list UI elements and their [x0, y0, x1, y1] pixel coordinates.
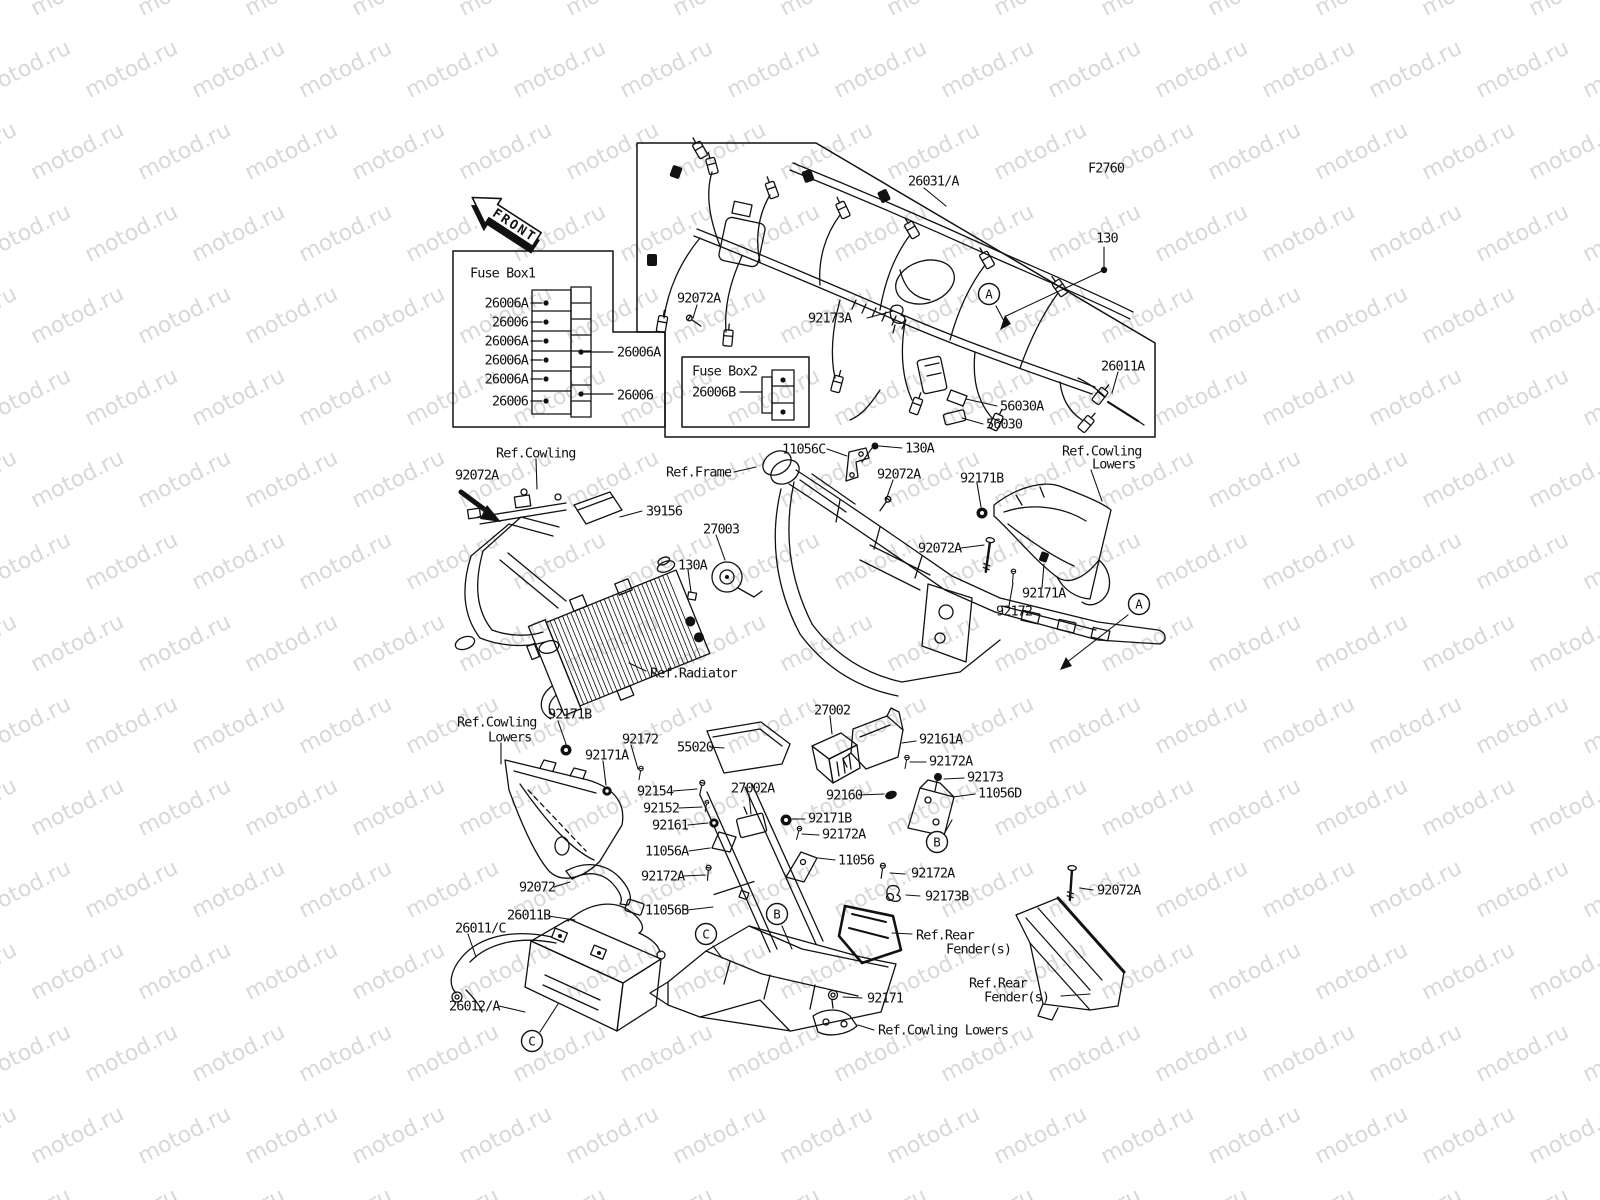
parts-diagram-page: { "watermark": {"text": "motod.ru", "col…: [0, 0, 1600, 1200]
undertray: [650, 926, 896, 1031]
callout-92172a-6: 92172A: [822, 827, 866, 843]
marker-layer: AABBCC: [522, 284, 1150, 1052]
callout-56030: 56030: [986, 417, 1023, 433]
callout-92171b-1: 92171B: [960, 471, 1004, 487]
callout-92072: 92072: [519, 880, 555, 896]
callout-92171a-2: 92171A: [585, 748, 629, 764]
battery-cable-26011b: [568, 904, 642, 933]
battery-strap: [566, 865, 630, 905]
callout-26031a: 26031/A: [908, 174, 959, 190]
callout-11056a: 11056A: [645, 844, 689, 860]
callout-39156: 39156: [646, 504, 683, 520]
callout-92072a-9: 92072A: [1097, 883, 1141, 899]
marker-b-3: B: [767, 904, 788, 925]
callout-92173b: 92173B: [925, 889, 969, 905]
fuse-box1-internals: [531, 287, 613, 417]
callout-92072a-1: 92072A: [677, 291, 721, 307]
callout-92171b-2: 92171B: [808, 811, 852, 827]
callout-fuse1-left-3: 26006A: [485, 334, 529, 350]
callout-26011b: 26011B: [507, 908, 551, 924]
callout-92171: 92171: [867, 991, 904, 1007]
callout-ref-cowl-lowers-b: Ref.Cowling Lowers: [878, 1023, 1008, 1039]
callout-92171a-1: 92171A: [1022, 586, 1066, 602]
callout-fuse1-left-1: 26006A: [485, 296, 529, 312]
marker-c-4: C: [696, 924, 717, 945]
marker-a-1: A: [1129, 594, 1150, 615]
callout-130a-2: 130A: [678, 558, 708, 574]
callout-27002: 27002: [814, 703, 850, 719]
callout-11056c: 11056C: [782, 442, 826, 458]
callout-92161: 92161: [652, 818, 689, 834]
callout-27002a: 27002A: [731, 781, 775, 797]
callout-27003: 27003: [703, 522, 740, 538]
marker-b-2: B: [927, 832, 948, 853]
marker-letter: B: [773, 907, 781, 922]
callout-ref-cowl-lowers-l2: Lowers: [488, 730, 531, 746]
callout-ref-radiator: Ref.Radiator: [650, 666, 738, 682]
marker-letter: A: [1135, 597, 1143, 612]
horn: [712, 562, 762, 597]
callout-fuse1-right-1: 26006A: [617, 345, 661, 361]
callout-92152: 92152: [643, 801, 679, 817]
callout-92072a-4: 92072A: [918, 541, 962, 557]
callout-fusebox2-title: Fuse Box2: [692, 364, 757, 380]
callout-fuse1-left-6: 26006: [492, 394, 529, 410]
marker-letter: C: [702, 927, 710, 942]
callout-92171b-3: 92171B: [548, 707, 592, 723]
callout-26011c: 26011/C: [455, 921, 506, 937]
callout-ref-cowl-lowers-l1: Ref.Cowling: [457, 715, 537, 731]
callout-11056d: 11056D: [978, 786, 1022, 802]
heat-pad: [574, 492, 622, 524]
callout-55020: 55020: [677, 740, 714, 756]
callout-92072a-2: 92072A: [455, 468, 499, 484]
callout-26011a: 26011A: [1101, 359, 1145, 375]
rear-fender-center: [839, 906, 901, 963]
callout-92172a-7: 92172A: [641, 869, 685, 885]
callout-fusebox1-title: Fuse Box1: [470, 266, 536, 282]
callout-ref-rear-fender-c2: Fender(s): [946, 942, 1011, 958]
parts-diagram: FRONT: [0, 0, 1600, 1200]
callout-fuse1-left-5: 26006A: [485, 372, 529, 388]
marker-letter: B: [933, 835, 941, 850]
marker-c-5: C: [522, 1031, 543, 1052]
callout-fuse1-left-2: 26006: [492, 315, 529, 331]
callout-92072a-3: 92072A: [877, 467, 921, 483]
front-arrow: FRONT: [460, 185, 547, 260]
marker-letter: C: [528, 1034, 536, 1049]
fasteners: [561, 495, 1077, 901]
callout-92172a-5: 92172A: [929, 754, 973, 770]
callout-f2760: F2760: [1088, 161, 1125, 177]
callout-92173: 92173: [967, 770, 1004, 786]
callout-92172-2: 92172: [622, 732, 658, 748]
radiator: [506, 554, 714, 728]
marker-a-0: A: [979, 284, 1000, 305]
marker-letter: A: [985, 287, 993, 302]
callout-ref-cowl-lowers-tr2: Lowers: [1092, 457, 1135, 473]
callout-ref-cowling: Ref.Cowling: [496, 446, 576, 462]
battery-cable-26011c: [451, 934, 552, 993]
callout-130: 130: [1096, 231, 1118, 247]
callout-ref-rear-fender-r2: Fender(s): [984, 990, 1049, 1006]
callout-92173a: 92173A: [808, 311, 852, 327]
callout-26012a: 26012/A: [449, 999, 500, 1015]
callout-92154: 92154: [637, 784, 674, 800]
callout-fuse1-right-2: 26006: [617, 388, 654, 404]
callout-ref-frame: Ref.Frame: [666, 465, 732, 481]
callout-fuse1-left-4: 26006A: [485, 353, 529, 369]
callout-26006b: 26006B: [692, 385, 736, 401]
callout-layer: Fuse Box126006A2600626006A26006A26006A26…: [449, 161, 1145, 1039]
callout-130a-1: 130A: [905, 441, 935, 457]
callout-92160: 92160: [826, 788, 863, 804]
callout-92172a-8: 92172A: [911, 866, 955, 882]
callout-11056: 11056: [838, 853, 875, 869]
callout-56030a: 56030A: [1000, 399, 1044, 415]
callout-11056b: 11056B: [645, 903, 689, 919]
callout-92172-1: 92172: [996, 604, 1032, 620]
callout-92161a: 92161A: [919, 732, 963, 748]
